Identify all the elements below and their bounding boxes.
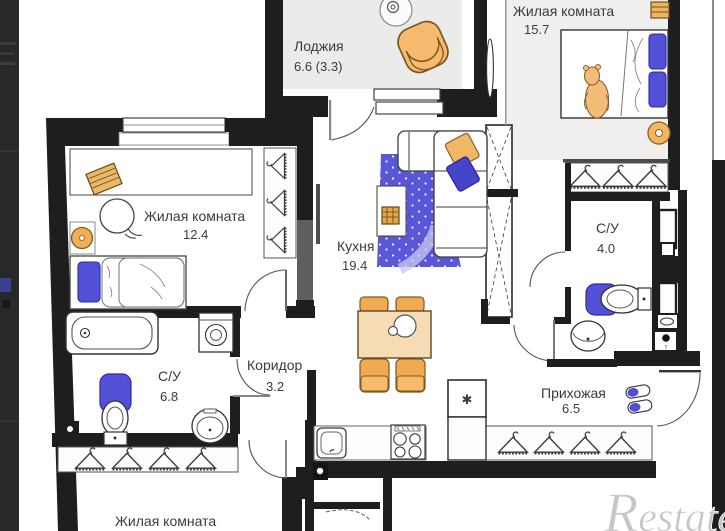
svg-text:Жилая комната: Жилая комната — [115, 513, 216, 529]
svg-text:С/У: С/У — [596, 220, 619, 236]
svg-text:3.2: 3.2 — [266, 379, 284, 394]
svg-text:✱: ✱ — [462, 392, 473, 407]
svg-text:12.4: 12.4 — [183, 227, 208, 242]
svg-text:С/У: С/У — [158, 368, 181, 384]
svg-text:Кухня: Кухня — [337, 238, 374, 254]
svg-text:Коридор: Коридор — [247, 357, 303, 373]
svg-text:15.7: 15.7 — [524, 22, 549, 37]
svg-text:Прихожая: Прихожая — [541, 385, 606, 401]
svg-text:19.4: 19.4 — [342, 258, 367, 273]
svg-text:6.5: 6.5 — [562, 401, 580, 416]
svg-text:Жилая комната: Жилая комната — [513, 3, 614, 19]
svg-text:6.6 (3.3): 6.6 (3.3) — [294, 59, 342, 74]
svg-text:6.8: 6.8 — [160, 389, 178, 404]
svg-text:Лоджия: Лоджия — [294, 38, 344, 54]
svg-text:т: т — [665, 345, 668, 351]
svg-text:Жилая комната: Жилая комната — [144, 208, 245, 224]
svg-text:4.0: 4.0 — [597, 241, 615, 256]
